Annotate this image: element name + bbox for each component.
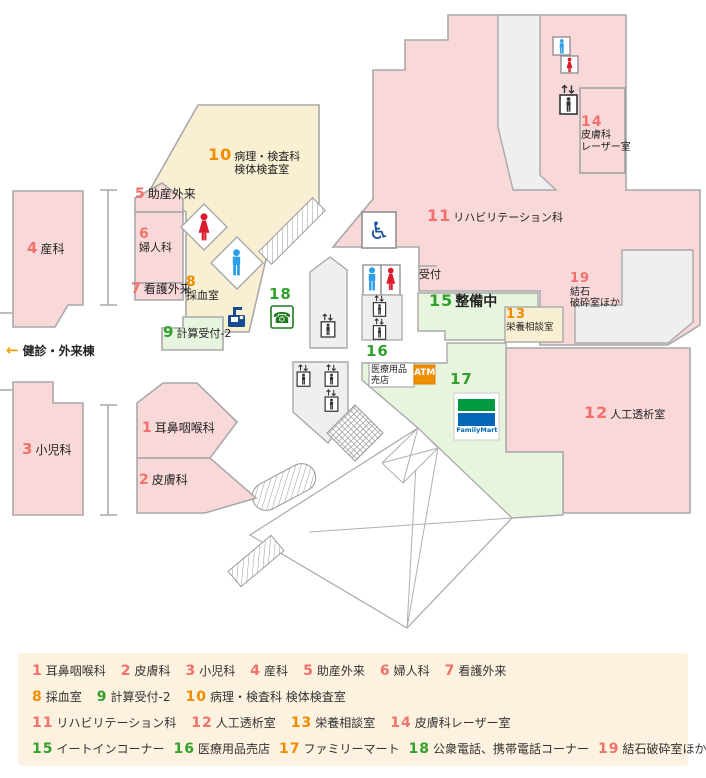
- room-number-19: 19: [570, 271, 590, 286]
- room-number-8: 8: [186, 274, 197, 290]
- room-label-14: 14皮膚科レーザー室: [581, 112, 631, 153]
- room-labels-layer: 受付 ← 健診・外来棟 医療用品 売店 ATM FamilyMart 1耳鼻咽喉…: [0, 0, 706, 645]
- legend-number-2: 2: [121, 663, 132, 679]
- left-arrow-icon: ←: [6, 341, 19, 359]
- legend-number-6: 6: [380, 663, 391, 679]
- room-label-16: 16: [366, 342, 389, 360]
- legend-item-7: 7看護外来: [445, 662, 507, 679]
- room-label-9: 9計算受付-2: [163, 324, 231, 341]
- room-label-18: 18: [269, 285, 292, 303]
- room-number-13: 13: [506, 307, 526, 322]
- room-number-4: 4: [27, 240, 38, 257]
- legend-row-4: 15イートインコーナー16医療用品売店17ファミリーマート18公衆電話、携帯電話…: [32, 740, 688, 766]
- room-label-2: 2皮膚科: [139, 472, 188, 488]
- legend-item-6: 6婦人科: [380, 662, 430, 679]
- legend-label-4: 産科: [264, 662, 288, 679]
- legend-label-17: ファミリーマート: [303, 740, 399, 757]
- legend-number-7: 7: [445, 663, 456, 679]
- legend-number-16: 16: [174, 741, 195, 757]
- room-label-12: 12人工透析室: [584, 404, 665, 422]
- legend-number-11: 11: [32, 715, 53, 731]
- room-number-6: 6: [139, 226, 150, 242]
- room-label-13: 13栄養相談室: [506, 304, 554, 334]
- room-label-text-6-0: 婦人科: [139, 242, 172, 255]
- legend-number-12: 12: [191, 715, 212, 731]
- room-label-7: 7看護外来: [131, 281, 192, 297]
- room-number-5: 5: [135, 186, 146, 202]
- legend-number-14: 14: [390, 715, 411, 731]
- legend-item-3: 3小児科: [186, 662, 236, 679]
- legend-number-5: 5: [303, 663, 314, 679]
- legend-number-3: 3: [186, 663, 197, 679]
- legend-item-12: 12人工透析室: [191, 714, 276, 731]
- room-number-10: 10: [208, 146, 232, 164]
- legend-label-10: 病理・検査科 検体検査室: [210, 688, 346, 705]
- room-number-2: 2: [139, 472, 150, 488]
- room-label-19: 19結石破砕室ほか: [570, 268, 620, 310]
- room-number-9: 9: [163, 324, 174, 341]
- room-label-4: 4産科: [27, 240, 64, 257]
- legend-label-9: 計算受付-2: [111, 688, 171, 705]
- room-label-10: 10病理・検査科検体検査室: [208, 146, 300, 176]
- room-label-text-19-0: 結石: [570, 287, 620, 299]
- room-label-5: 5助産外来: [135, 186, 196, 202]
- room-label-6: 6婦人科: [139, 224, 172, 255]
- legend-item-8: 8採血室: [32, 688, 82, 705]
- legend-number-17: 17: [279, 741, 300, 757]
- legend-label-3: 小児科: [199, 662, 235, 679]
- room-label-3: 3小児科: [22, 441, 71, 458]
- room-label-text-10-1: 検体検査室: [234, 164, 300, 177]
- legend-label-13: 栄養相談室: [315, 714, 375, 731]
- annex-direction-label: ← 健診・外来棟: [6, 341, 95, 359]
- room-label-text-7-0: 看護外来: [144, 283, 192, 297]
- room-number-17: 17: [450, 370, 473, 388]
- legend-number-9: 9: [97, 689, 108, 705]
- atm-label: ATM: [414, 368, 435, 378]
- legend-number-8: 8: [32, 689, 43, 705]
- legend-label-15: イートインコーナー: [56, 740, 164, 757]
- legend-row-2: 8採血室9計算受付-210病理・検査科 検体検査室: [32, 688, 688, 714]
- legend-item-13: 13栄養相談室: [291, 714, 376, 731]
- room-16-shop-label: 医療用品 売店: [371, 365, 407, 387]
- legend-label-1: 耳鼻咽喉科: [46, 662, 106, 679]
- room-number-12: 12: [584, 404, 608, 422]
- legend-row-1: 1耳鼻咽喉科2皮膚科3小児科4産科5助産外来6婦人科7看護外来: [32, 662, 688, 688]
- legend-item-11: 11リハビリテーション科: [32, 714, 176, 731]
- legend-label-8: 採血室: [46, 688, 82, 705]
- legend-item-10: 10病理・検査科 検体検査室: [185, 688, 345, 705]
- hospital-floor-map-page: ♿ ☎: [0, 0, 706, 778]
- legend-item-5: 5助産外来: [303, 662, 365, 679]
- legend-label-6: 婦人科: [394, 662, 430, 679]
- legend-item-9: 9計算受付-2: [97, 688, 171, 705]
- legend-label-14: 皮膚科レーザー室: [415, 714, 511, 731]
- legend-number-4: 4: [250, 663, 261, 679]
- legend-number-1: 1: [32, 663, 43, 679]
- room-number-3: 3: [22, 441, 33, 458]
- legend-label-16: 医療用品売店: [198, 740, 270, 757]
- room-number-18: 18: [269, 285, 292, 303]
- room-label-15: 15整備中: [429, 292, 497, 310]
- legend-label-12: 人工透析室: [216, 714, 276, 731]
- legend-item-16: 16医療用品売店: [174, 740, 271, 757]
- room-number-11: 11: [427, 207, 451, 225]
- room-label-text-10-0: 病理・検査科: [234, 151, 300, 164]
- legend-panel: 1耳鼻咽喉科2皮膚科3小児科4産科5助産外来6婦人科7看護外来8採血室9計算受付…: [18, 653, 688, 766]
- room-label-text-19-1: 破砕室ほか: [570, 298, 620, 310]
- legend-item-1: 1耳鼻咽喉科: [32, 662, 106, 679]
- legend-item-17: 17ファミリーマート: [279, 740, 400, 757]
- room-label-lines-10: 病理・検査科検体検査室: [234, 151, 300, 176]
- legend-label-7: 看護外来: [458, 662, 506, 679]
- legend-label-11: リハビリテーション科: [56, 714, 176, 731]
- legend-number-10: 10: [185, 689, 206, 705]
- legend-item-14: 14皮膚科レーザー室: [390, 714, 510, 731]
- legend-number-13: 13: [291, 715, 312, 731]
- legend-number-15: 15: [32, 741, 53, 757]
- legend-label-19: 結石破砕室ほか: [622, 740, 706, 757]
- room-label-text-4-0: 産科: [40, 243, 64, 257]
- room-label-text-5-0: 助産外来: [148, 188, 196, 202]
- legend-item-2: 2皮膚科: [121, 662, 171, 679]
- legend-row-3: 11リハビリテーション科12人工透析室13栄養相談室14皮膚科レーザー室: [32, 714, 688, 740]
- room-label-text-8-0: 採血室: [186, 290, 219, 303]
- room-number-15: 15: [429, 292, 453, 310]
- room-label-text-2-0: 皮膚科: [152, 474, 188, 488]
- legend-item-4: 4産科: [250, 662, 288, 679]
- room-number-1: 1: [142, 420, 153, 436]
- room-label-text-15-0: 整備中: [455, 294, 497, 310]
- shop16-line1: 医療用品: [371, 365, 407, 376]
- room-number-7: 7: [131, 281, 142, 297]
- legend-item-15: 15イートインコーナー: [32, 740, 165, 757]
- annex-label-text: 健診・外来棟: [23, 342, 95, 359]
- room-label-text-3-0: 小児科: [35, 444, 71, 458]
- room-number-16: 16: [366, 342, 389, 360]
- legend-label-5: 助産外来: [317, 662, 365, 679]
- room-label-text-9-0: 計算受付-2: [176, 328, 231, 341]
- room-label-text-12-0: 人工透析室: [610, 409, 665, 422]
- shop16-line2: 売店: [371, 376, 407, 387]
- room-number-14: 14: [581, 114, 602, 130]
- room-label-17: 17: [450, 370, 473, 388]
- familymart-label: FamilyMart: [456, 426, 498, 434]
- room-label-text-14-0: 皮膚科: [581, 130, 631, 142]
- legend-number-18: 18: [409, 741, 430, 757]
- legend-label-18: 公衆電話、携帯電話コーナー: [433, 740, 589, 757]
- room-label-1: 1耳鼻咽喉科: [142, 420, 215, 436]
- room-label-text-1-0: 耳鼻咽喉科: [155, 422, 215, 436]
- reception-label: 受付: [419, 266, 441, 282]
- room-label-text-11-0: リハビリテーション科: [453, 212, 563, 225]
- legend-number-19: 19: [598, 741, 619, 757]
- room-label-text-13-0: 栄養相談室: [506, 323, 554, 334]
- legend-item-18: 18公衆電話、携帯電話コーナー: [409, 740, 590, 757]
- room-label-8: 8採血室: [186, 272, 219, 303]
- legend-label-2: 皮膚科: [135, 662, 171, 679]
- room-label-text-14-1: レーザー室: [581, 142, 631, 154]
- room-label-11: 11リハビリテーション科: [427, 207, 563, 225]
- legend-item-19: 19結石破砕室ほか: [598, 740, 706, 757]
